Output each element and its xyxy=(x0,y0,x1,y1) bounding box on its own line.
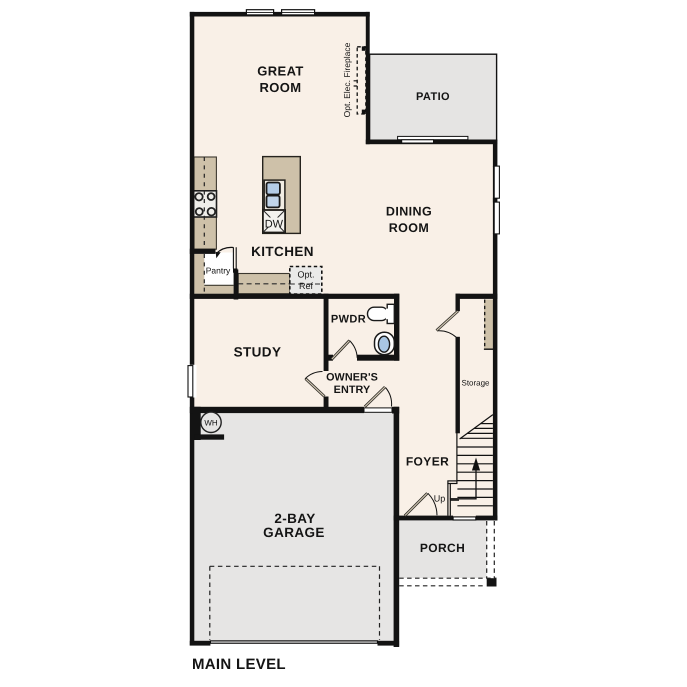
svg-text:GREAT: GREAT xyxy=(257,64,304,79)
svg-text:Pantry: Pantry xyxy=(206,266,231,276)
svg-text:STUDY: STUDY xyxy=(234,345,282,360)
svg-text:ENTRY: ENTRY xyxy=(334,384,371,396)
svg-text:PATIO: PATIO xyxy=(416,91,450,103)
svg-text:GARAGE: GARAGE xyxy=(263,525,325,540)
svg-text:ROOM: ROOM xyxy=(389,221,430,235)
svg-text:Storage: Storage xyxy=(461,379,490,388)
svg-text:PWDR: PWDR xyxy=(331,314,366,326)
svg-text:Opt. Elec. Fireplace: Opt. Elec. Fireplace xyxy=(342,42,352,117)
svg-text:ROOM: ROOM xyxy=(259,80,301,95)
svg-text:Up: Up xyxy=(434,494,446,504)
svg-text:2-BAY: 2-BAY xyxy=(274,511,315,526)
svg-text:MAIN LEVEL: MAIN LEVEL xyxy=(192,656,286,673)
svg-text:Opt.: Opt. xyxy=(297,270,314,280)
svg-text:DINING: DINING xyxy=(386,205,432,219)
svg-text:KITCHEN: KITCHEN xyxy=(251,244,314,259)
svg-text:WH: WH xyxy=(204,418,218,427)
svg-text:Ref: Ref xyxy=(299,281,314,291)
svg-text:PORCH: PORCH xyxy=(420,541,465,555)
svg-text:FOYER: FOYER xyxy=(406,455,449,469)
svg-text:OWNER'S: OWNER'S xyxy=(326,372,378,384)
svg-text:DW: DW xyxy=(265,218,284,230)
